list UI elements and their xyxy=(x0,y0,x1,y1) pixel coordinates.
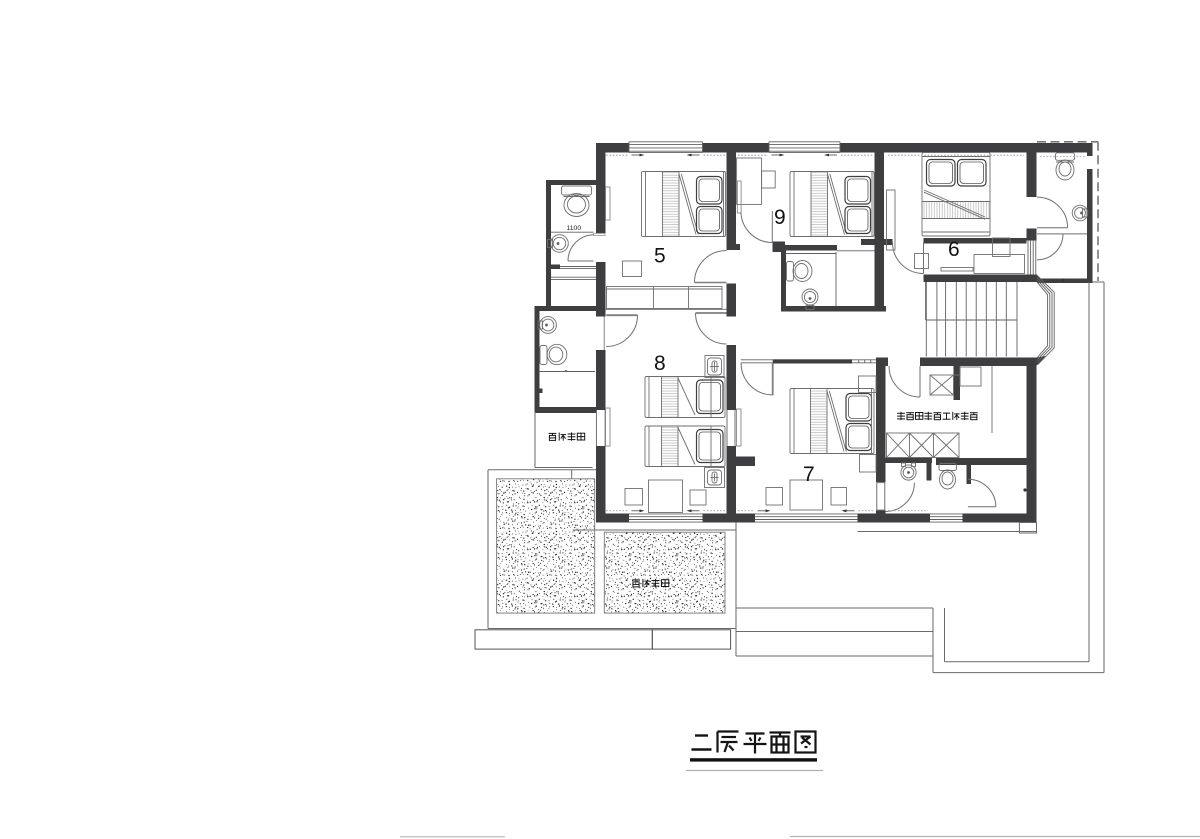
svg-text:6: 6 xyxy=(948,238,960,261)
svg-text:9: 9 xyxy=(774,206,786,229)
svg-text:8: 8 xyxy=(654,352,666,375)
svg-text:1100: 1100 xyxy=(567,225,582,232)
svg-text:7: 7 xyxy=(803,463,815,486)
svg-text:5: 5 xyxy=(654,245,666,268)
